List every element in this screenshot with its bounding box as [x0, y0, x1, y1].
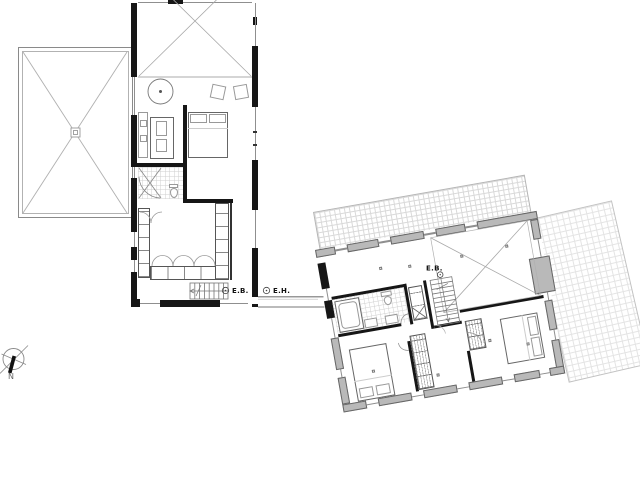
window [457, 386, 469, 390]
window-door [255, 107, 257, 160]
wardrobe-column [138, 208, 150, 278]
void-wall [460, 295, 544, 313]
stairs-upper [430, 277, 460, 326]
bed-pillow [209, 114, 226, 123]
wall-segment [315, 247, 336, 258]
wall-segment [252, 248, 258, 294]
window-door [325, 289, 329, 301]
window [465, 225, 477, 229]
window [134, 232, 136, 247]
window [134, 77, 136, 115]
shelving-column [215, 203, 229, 280]
wall-segment [338, 377, 351, 405]
carport-roof-inner [22, 51, 129, 214]
window [537, 239, 542, 257]
fixture-dot [460, 254, 463, 257]
window [502, 378, 514, 382]
window [255, 210, 257, 248]
wall-segment [168, 0, 183, 4]
window [553, 330, 556, 340]
north-label: N [8, 373, 14, 381]
hall-wall [434, 321, 462, 329]
wall-line-top [138, 2, 252, 3]
window [220, 303, 248, 305]
wall-segment [131, 3, 137, 77]
fixture-dot [526, 342, 529, 345]
chair [210, 84, 227, 101]
wall-segment [331, 337, 344, 370]
fixture-dot [408, 265, 411, 268]
fixture-dot [372, 369, 375, 372]
level-marker-label-upper: E.B. [426, 265, 443, 273]
window [140, 303, 160, 305]
closet-right-bedroom [465, 318, 487, 350]
interior-wall [183, 105, 187, 203]
wall-segment [131, 247, 137, 260]
floor-plan-scene: E.B. [0, 0, 640, 480]
fixture-dot [379, 267, 382, 270]
wall-segment [514, 370, 541, 382]
wall-segment [252, 160, 258, 210]
bed-pillow [190, 114, 207, 123]
window [134, 167, 136, 178]
window [335, 248, 347, 252]
chair [233, 84, 249, 100]
wall-segment [131, 115, 137, 167]
fixture-dot [505, 244, 508, 247]
corridor-jamb [252, 294, 258, 297]
wardrobe-rail-arcs [140, 212, 215, 266]
closet-middle [409, 333, 434, 390]
wall-segment [549, 366, 565, 376]
appliance [140, 120, 147, 127]
cooktop [156, 139, 167, 152]
bedroom-wall [467, 351, 475, 382]
kitchen-sink [156, 121, 167, 136]
void-room-x-left [138, 0, 252, 77]
bed-duvet-line [188, 128, 228, 129]
level-marker-label-ground: E.B. [232, 287, 249, 295]
stairs-main [190, 283, 228, 299]
window [546, 292, 549, 300]
corridor-jamb [252, 304, 258, 307]
window [424, 232, 436, 236]
window [255, 3, 257, 46]
shelf-wall [230, 203, 232, 280]
north-compass-icon [0, 346, 28, 374]
window [134, 260, 136, 272]
fixture-dot [436, 373, 439, 376]
wall-segment [131, 299, 140, 307]
window [379, 240, 391, 244]
door-handle-tick [253, 144, 257, 146]
level-marker-label-house: E.H. [273, 287, 290, 295]
door-handle-tick [253, 131, 257, 133]
wall-segment [317, 262, 329, 289]
window [340, 369, 343, 377]
corridor-link [258, 297, 325, 307]
fixture-dot [488, 339, 491, 342]
appliance [140, 135, 147, 142]
wall-segment [252, 46, 258, 107]
wall-segment [160, 300, 220, 307]
window [540, 372, 550, 375]
toilet-bowl [170, 188, 178, 198]
dining-table [148, 79, 173, 104]
wardrobe-row [150, 266, 216, 280]
window [412, 394, 424, 398]
window [367, 402, 379, 406]
wall-segment [131, 178, 137, 232]
